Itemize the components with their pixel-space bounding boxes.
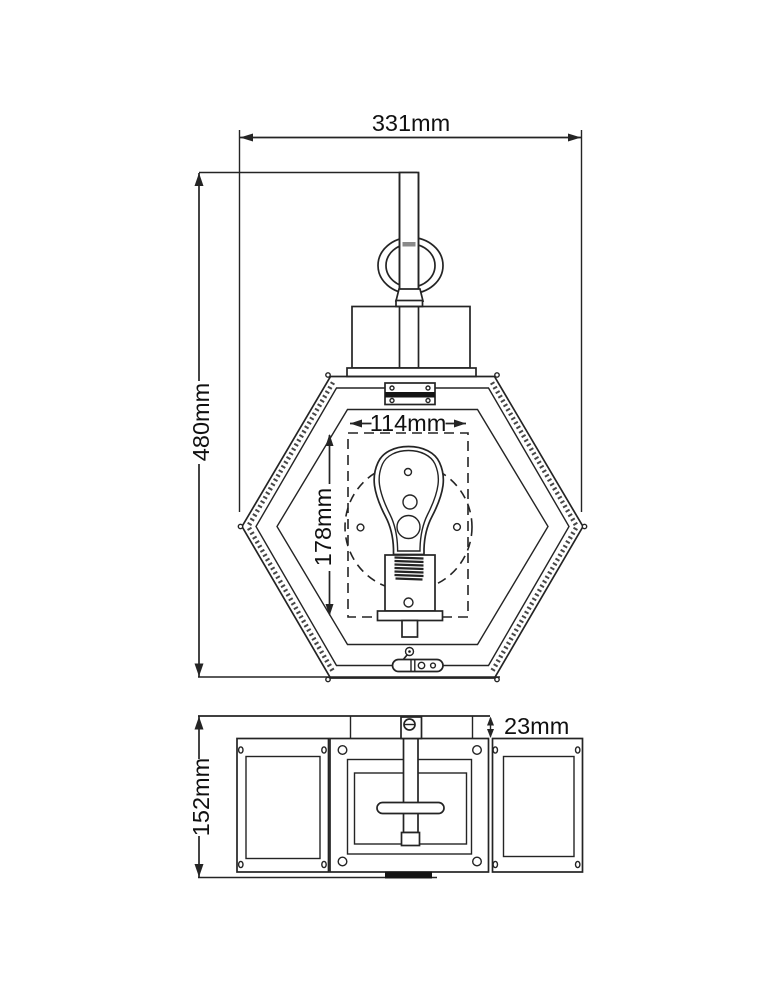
corner-rivet bbox=[495, 677, 499, 681]
wall-plate-section bbox=[385, 872, 432, 879]
bulb-opening-width-label: 114mm bbox=[370, 410, 447, 436]
socket-base-plate bbox=[378, 611, 443, 621]
arm-foot bbox=[402, 833, 420, 846]
corner-rivet bbox=[326, 373, 330, 377]
corner-rivet bbox=[495, 373, 499, 377]
dimension-overall-height: 480mm bbox=[188, 173, 500, 678]
dimension-drawing-page: 331mm 480mm bbox=[0, 0, 774, 1000]
socket-stem bbox=[402, 621, 418, 638]
arm-collar bbox=[396, 289, 423, 301]
drawing-canvas: 331mm 480mm bbox=[0, 0, 774, 1000]
overall-height-label: 480mm bbox=[188, 383, 214, 461]
arm-collar-flange bbox=[396, 301, 423, 307]
screw bbox=[390, 386, 394, 390]
wall-gap-label: 23mm bbox=[504, 713, 569, 739]
bulb-socket bbox=[378, 555, 443, 637]
screw-threads bbox=[395, 558, 424, 580]
side-screw-hole bbox=[454, 524, 461, 531]
arm-bottom-view bbox=[377, 717, 444, 846]
dimension-depth: 152mm bbox=[188, 716, 214, 877]
bottom-latch bbox=[393, 648, 444, 672]
depth-label: 152mm bbox=[188, 758, 214, 836]
corner-rivet bbox=[238, 524, 242, 528]
right-side-panel bbox=[493, 739, 583, 873]
screw bbox=[390, 399, 394, 403]
corner-rivet bbox=[326, 677, 330, 681]
left-side-panel bbox=[237, 739, 329, 873]
bulb-opening-height-label: 178mm bbox=[310, 488, 336, 566]
screw bbox=[426, 399, 430, 403]
wall-mount-arm bbox=[378, 173, 443, 307]
bottom-view: 152mm 23mm bbox=[188, 713, 583, 879]
screw bbox=[426, 386, 430, 390]
arm-shaft bbox=[404, 739, 419, 833]
side-screw-hole bbox=[357, 524, 364, 531]
ring-pivot-detail bbox=[403, 242, 416, 247]
lantern-top-cap bbox=[347, 307, 476, 377]
latch-handle bbox=[377, 803, 444, 814]
socket-housing bbox=[385, 555, 435, 611]
overall-width-label: 331mm bbox=[372, 110, 450, 136]
corner-rivet bbox=[582, 524, 586, 528]
edison-bulb bbox=[374, 447, 443, 555]
dimension-wall-gap: 23mm bbox=[487, 713, 569, 739]
